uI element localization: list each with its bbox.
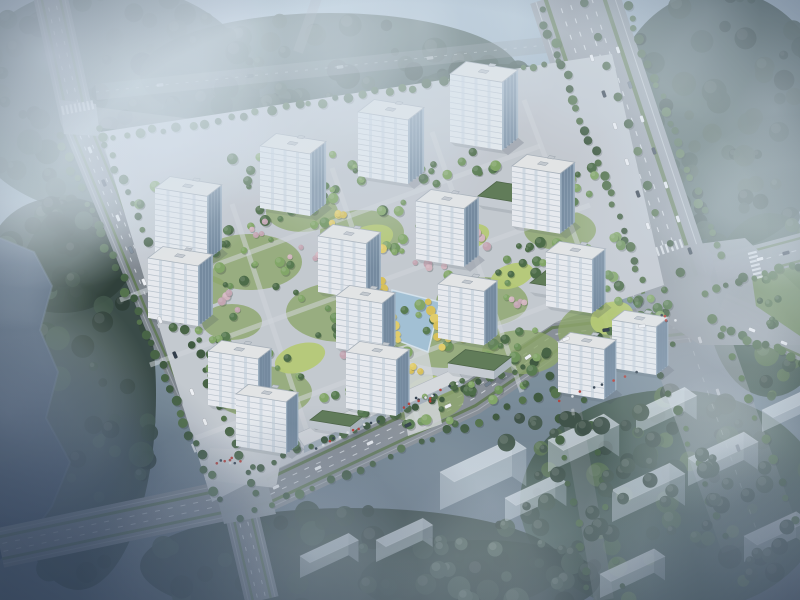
rendered-scene [0, 0, 800, 600]
vignette [0, 0, 800, 600]
aerial-city-render [0, 0, 800, 600]
mist-overlay [0, 0, 800, 600]
